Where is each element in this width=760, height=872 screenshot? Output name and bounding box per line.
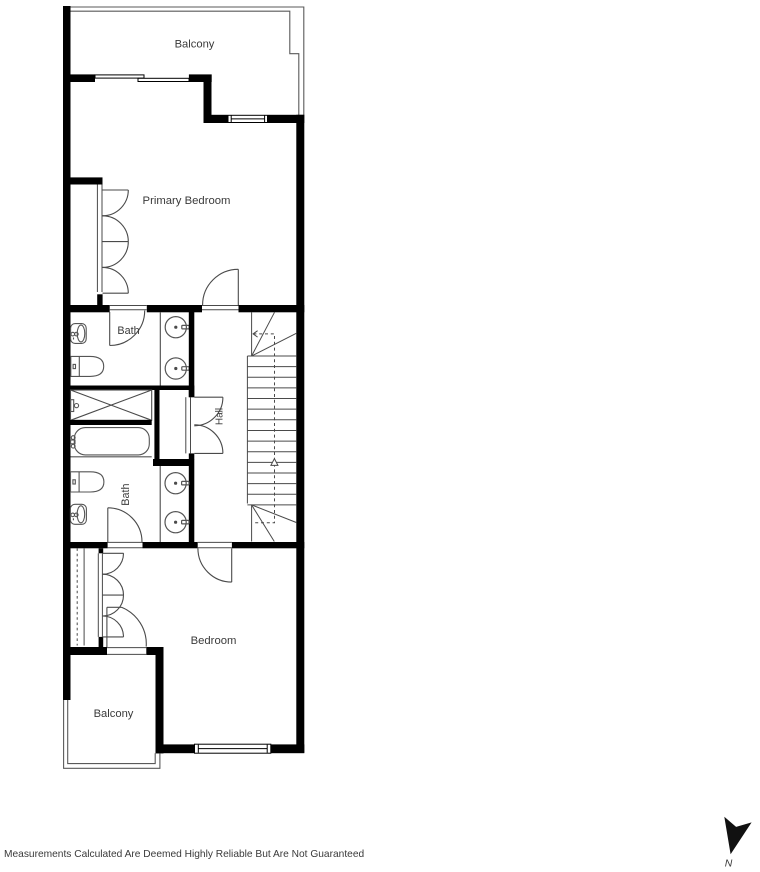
svg-text:N: N	[725, 858, 733, 870]
svg-text:Balcony: Balcony	[94, 708, 134, 720]
svg-text:Bedroom: Bedroom	[191, 635, 237, 647]
svg-text:Measurements Calculated Are De: Measurements Calculated Are Deemed Highl…	[4, 849, 364, 860]
svg-text:Bath: Bath	[117, 325, 139, 337]
svg-text:Primary Bedroom: Primary Bedroom	[143, 195, 231, 207]
svg-text:Bath: Bath	[120, 483, 132, 505]
svg-text:Hall: Hall	[214, 408, 225, 425]
svg-text:Balcony: Balcony	[175, 39, 215, 51]
